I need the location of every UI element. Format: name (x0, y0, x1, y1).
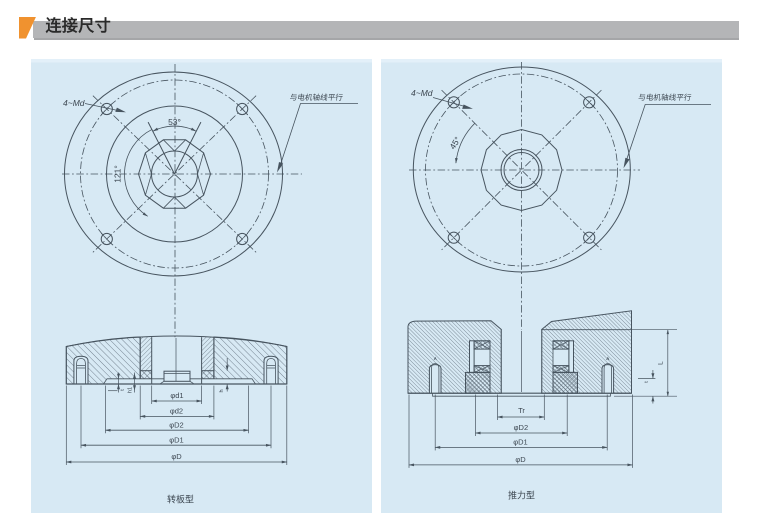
svg-text:φd2: φd2 (170, 407, 183, 416)
svg-text:Tr: Tr (518, 406, 525, 415)
svg-text:φd1: φd1 (170, 391, 183, 400)
svg-text:转板型: 转板型 (167, 494, 194, 505)
svg-text:φD1: φD1 (513, 438, 527, 447)
svg-text:φD: φD (171, 452, 182, 461)
svg-text:与电机轴线平行: 与电机轴线平行 (638, 92, 693, 102)
svg-text:121°: 121° (113, 165, 123, 183)
svg-text:h1: h1 (128, 387, 134, 393)
svg-text:φD1: φD1 (169, 435, 183, 444)
svg-text:φD2: φD2 (169, 420, 183, 429)
svg-text:推力型: 推力型 (508, 490, 535, 501)
svg-text:φD: φD (515, 455, 526, 464)
svg-text:h: h (219, 389, 225, 392)
svg-text:与电机轴线平行: 与电机轴线平行 (289, 92, 344, 102)
svg-text:4~Md: 4~Md (411, 88, 433, 98)
svg-text:φD2: φD2 (514, 423, 528, 432)
svg-text:L: L (658, 361, 665, 365)
svg-text:53°: 53° (168, 117, 181, 127)
svg-text:4~Md: 4~Md (63, 98, 85, 108)
